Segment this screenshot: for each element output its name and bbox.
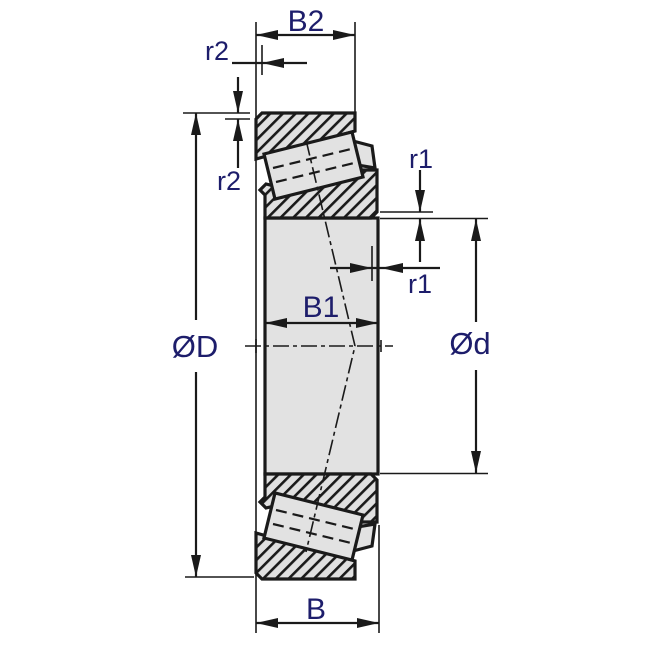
b2-arrow-right (333, 30, 355, 40)
bore-label: Ød (449, 326, 490, 361)
dimension-B2: B2 (256, 5, 355, 40)
bearing-dimension-diagram: B2 r2 r2 ØD r1 (0, 0, 670, 670)
r2v-arrow-up (233, 119, 243, 141)
od-label: ØD (172, 329, 219, 364)
r1v-arrow-up (415, 219, 425, 241)
r1v-label: r1 (409, 144, 433, 174)
b-arrow-left (256, 618, 278, 628)
dimension-r1-vertical: r1 (380, 144, 433, 262)
r1h-arrow-left (381, 263, 403, 273)
bore-arrow-down (471, 451, 481, 473)
b-label: B (306, 593, 326, 626)
r2v-label: r2 (217, 166, 241, 196)
bearing-cross-section-svg: B2 r2 r2 ØD r1 (0, 0, 670, 670)
b-arrow-right (357, 618, 379, 628)
dimension-outer-diameter: ØD (172, 113, 254, 577)
dimension-B: B (256, 593, 379, 628)
od-arrow-down (191, 555, 201, 577)
r1h-label: r1 (408, 269, 432, 299)
bearing-body (245, 113, 393, 579)
r2h-label: r2 (205, 36, 229, 66)
b2-arrow-left (256, 30, 278, 40)
r1v-arrow-down (415, 190, 425, 212)
b2-label: B2 (288, 5, 325, 38)
od-arrow-up (191, 113, 201, 135)
dimension-bore-diameter: Ød (380, 219, 491, 474)
dimension-r2-vertical: r2 (183, 77, 250, 196)
bore-arrow-up (471, 219, 481, 241)
b1-label: B1 (303, 291, 340, 324)
r2v-arrow-down (233, 91, 243, 113)
r2h-arrow (262, 58, 284, 68)
